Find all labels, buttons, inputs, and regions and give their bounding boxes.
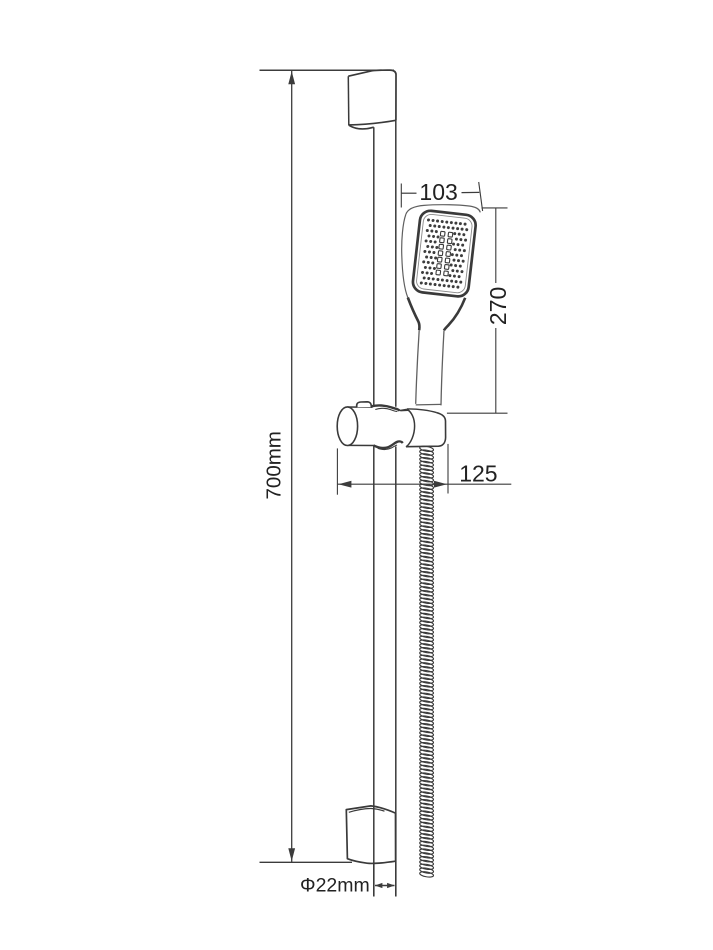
svg-text:Φ22mm: Φ22mm xyxy=(300,875,370,897)
svg-text:270: 270 xyxy=(485,287,511,325)
svg-text:700mm: 700mm xyxy=(262,431,285,499)
svg-text:103: 103 xyxy=(419,179,457,205)
svg-text:125: 125 xyxy=(459,461,497,487)
